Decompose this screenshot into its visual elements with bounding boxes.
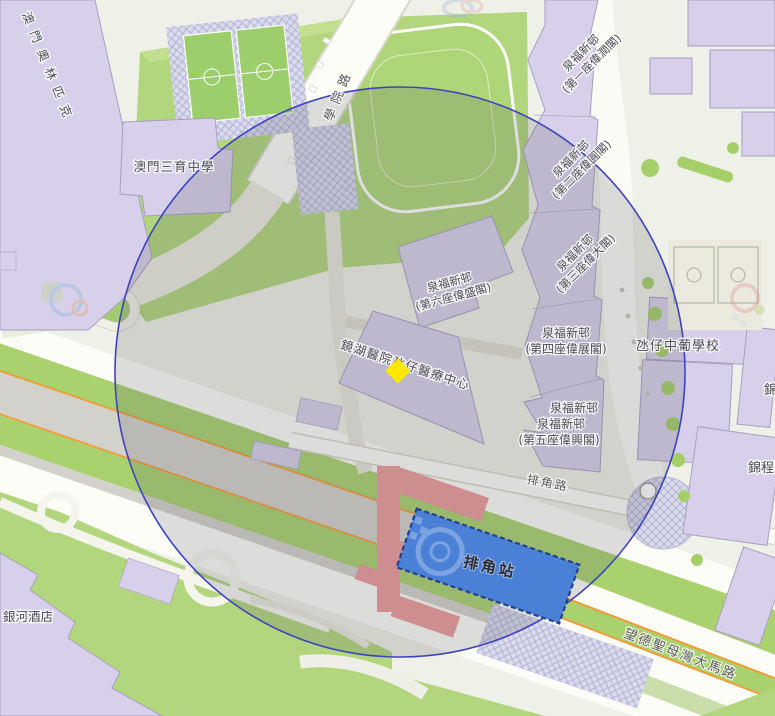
building-kam-cheng [683,427,775,546]
label-sanyu-school: 澳門三育中學 [133,159,214,174]
label-luso-school: 氹仔中葡學校 [636,338,720,354]
map-canvas[interactable]: 澳門奧林匹克 學院路 澳門三育中學 泉福新邨 (第一座偉潤閣) 泉福新邨 (第二… [0,0,775,716]
label-galaxy-hotel: 銀河酒店 [3,609,53,624]
map-viewport[interactable]: 澳門奧林匹克 學院路 澳門三育中學 泉福新邨 (第一座偉潤閣) 泉福新邨 (第二… [0,0,775,716]
building-sliver-left [0,252,16,270]
building-topright-2 [710,50,775,108]
svg-text:(第五座偉興閣): (第五座偉興閣) [518,432,599,447]
building-topright-4 [742,112,775,156]
label-right-edge-partial: 錦 [764,382,775,398]
svg-text:泉福新邨: 泉福新邨 [537,416,585,431]
svg-text:泉福新邨: 泉福新邨 [550,400,598,415]
label-kam-cheng: 錦程閣 [748,460,775,476]
svg-text:泉福新邨: 泉福新邨 [542,325,590,340]
svg-text:(第四座偉展閣): (第四座偉展閣) [525,341,606,356]
building-topright-1 [688,0,775,46]
building-topright-3 [650,58,692,94]
